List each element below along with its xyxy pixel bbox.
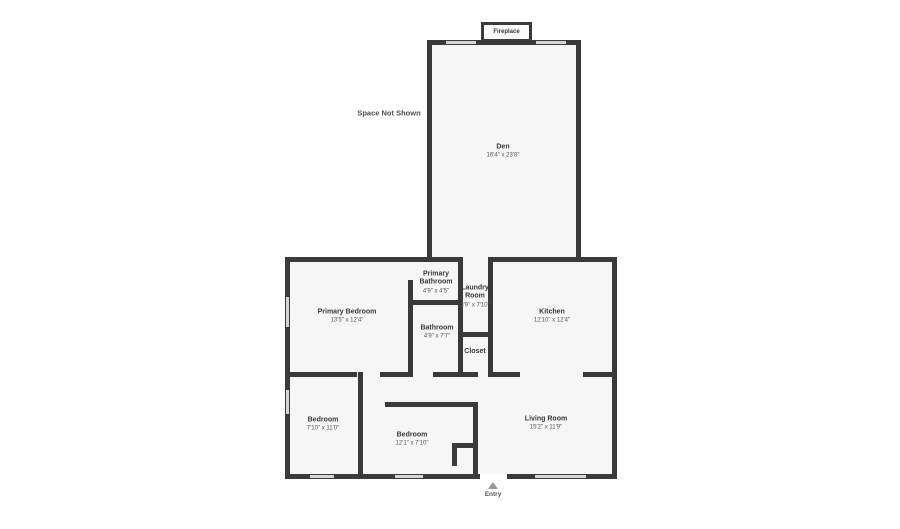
wall — [385, 402, 478, 407]
entry-arrow-icon — [488, 482, 498, 489]
wall — [488, 257, 493, 377]
wall — [285, 257, 460, 262]
room-name: Bedroom — [396, 432, 429, 440]
wall — [493, 372, 520, 377]
wall — [583, 372, 617, 377]
entry-label: Entry — [485, 491, 502, 498]
room-name: Laundry Room — [458, 285, 492, 302]
room-label-living-room: Living Room 15'2" x 11'9" — [525, 416, 567, 433]
wall — [488, 257, 617, 262]
room-name: Closet — [464, 348, 485, 356]
wall — [473, 402, 478, 479]
room-dims: 12'10" x 12'4" — [534, 318, 570, 325]
room-dims: 13'5" x 12'4" — [318, 318, 377, 325]
window — [286, 390, 289, 414]
wall — [612, 257, 617, 479]
window — [536, 41, 566, 44]
space-not-shown-label: Space Not Shown — [357, 109, 420, 118]
window — [535, 475, 586, 478]
room-label-bedroom-middle: Bedroom 12'1" x 7'10" — [396, 432, 429, 449]
wall — [285, 257, 290, 479]
room-name: Kitchen — [534, 309, 570, 317]
room-dims: 4'9" x 7'7" — [411, 334, 463, 341]
wall — [408, 300, 463, 305]
floor-plan: Fireplace Space Not Shown Den 16'4" x 23… — [0, 0, 900, 529]
wall — [576, 40, 581, 262]
wall — [427, 40, 432, 262]
room-label-kitchen: Kitchen 12'10" x 12'4" — [534, 309, 570, 326]
wall — [285, 372, 357, 377]
fireplace: Fireplace — [481, 22, 532, 42]
room-name: Primary Bathroom — [410, 271, 462, 288]
room-name: Living Room — [525, 416, 567, 424]
room-dims: 3'9" x 7'10" — [458, 302, 492, 309]
room-label-laundry-room: Laundry Room 3'9" x 7'10" — [458, 285, 492, 310]
wall — [433, 372, 478, 377]
window — [395, 475, 423, 478]
room-label-primary-bathroom: Primary Bathroom 4'9" x 4'5" — [410, 271, 462, 296]
wall — [452, 443, 457, 466]
room-label-bathroom: Bathroom 4'9" x 7'7" — [411, 325, 463, 342]
room-dims: 16'4" x 23'8" — [487, 153, 520, 160]
room-name: Bathroom — [411, 325, 463, 333]
window — [446, 41, 476, 44]
room-dims: 12'1" x 7'10" — [396, 441, 429, 448]
room-dims: 4'9" x 4'5" — [410, 288, 462, 295]
room-name: Bedroom — [293, 417, 353, 425]
room-name: Den — [487, 144, 520, 152]
room-label-closet: Closet — [464, 348, 485, 356]
wall — [358, 372, 363, 479]
room-dims: 7'10" x 11'0" — [293, 426, 353, 433]
room-name: Primary Bedroom — [318, 309, 377, 317]
fireplace-label: Fireplace — [493, 29, 519, 35]
window — [286, 297, 289, 327]
window — [310, 475, 334, 478]
room-label-den: Den 16'4" x 23'8" — [487, 144, 520, 161]
room-label-bedroom-left: Bedroom 7'10" x 11'0" — [293, 417, 353, 434]
wall — [458, 332, 493, 337]
room-dims: 15'2" x 11'9" — [525, 425, 567, 432]
room-label-primary-bedroom: Primary Bedroom 13'5" x 12'4" — [318, 309, 377, 326]
